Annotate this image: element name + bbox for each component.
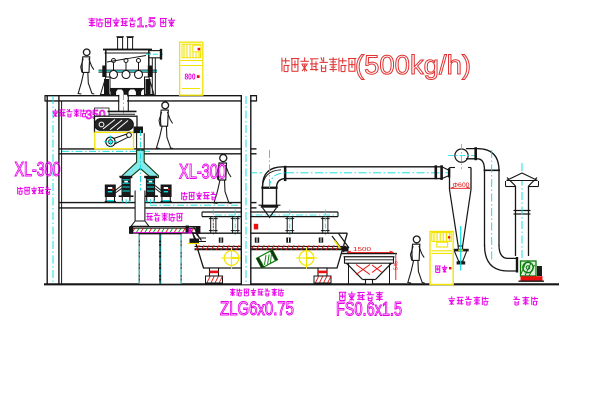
svg-text:545: 545 [394,261,400,270]
svg-text:1.5: 1.5 [137,14,157,30]
svg-text:ZLG6x0.75: ZLG6x0.75 [220,299,294,320]
svg-text:Φ600: Φ600 [453,182,471,189]
svg-text:XL-300: XL-300 [15,159,61,181]
svg-text:FS0.6x1.5: FS0.6x1.5 [336,300,402,321]
svg-text:800: 800 [185,72,196,82]
svg-text:XL-300: XL-300 [179,161,226,184]
svg-text:(500kg/h): (500kg/h) [355,50,471,80]
svg-text:1500: 1500 [353,247,371,253]
